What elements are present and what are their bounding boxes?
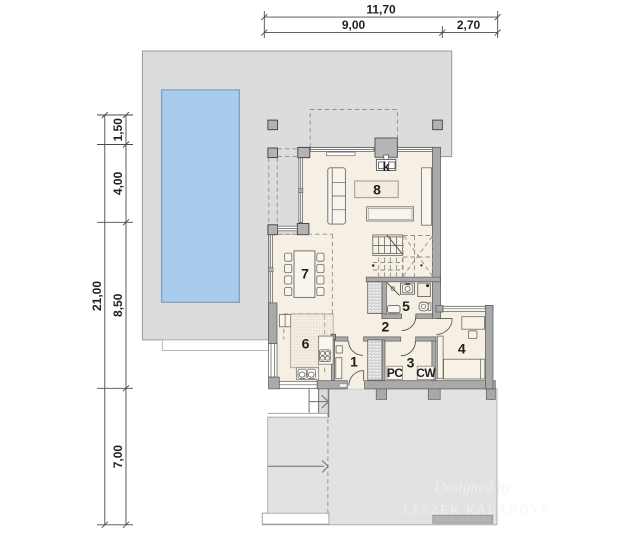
svg-text:7: 7: [301, 266, 309, 282]
svg-text:LESZEK KALANDYK: LESZEK KALANDYK: [403, 503, 552, 517]
svg-text:21,00: 21,00: [90, 281, 104, 311]
svg-text:5: 5: [402, 298, 410, 314]
svg-text:k: k: [383, 159, 391, 174]
svg-text:2,70: 2,70: [457, 18, 481, 32]
svg-text:8,50: 8,50: [111, 293, 125, 317]
svg-text:9,00: 9,00: [342, 18, 366, 32]
svg-text:6: 6: [302, 336, 310, 352]
svg-text:1,50: 1,50: [111, 118, 125, 142]
svg-text:1: 1: [350, 354, 358, 370]
svg-text:3: 3: [407, 354, 415, 370]
svg-text:2: 2: [382, 319, 390, 335]
svg-text:4: 4: [458, 340, 466, 356]
svg-text:11,70: 11,70: [366, 3, 396, 17]
svg-text:Designed by: Designed by: [433, 479, 511, 496]
svg-text:4,00: 4,00: [111, 171, 125, 195]
svg-text:PC: PC: [387, 366, 404, 380]
svg-text:8: 8: [373, 182, 381, 198]
svg-text:7,00: 7,00: [111, 445, 125, 469]
svg-text:CW: CW: [416, 366, 436, 380]
